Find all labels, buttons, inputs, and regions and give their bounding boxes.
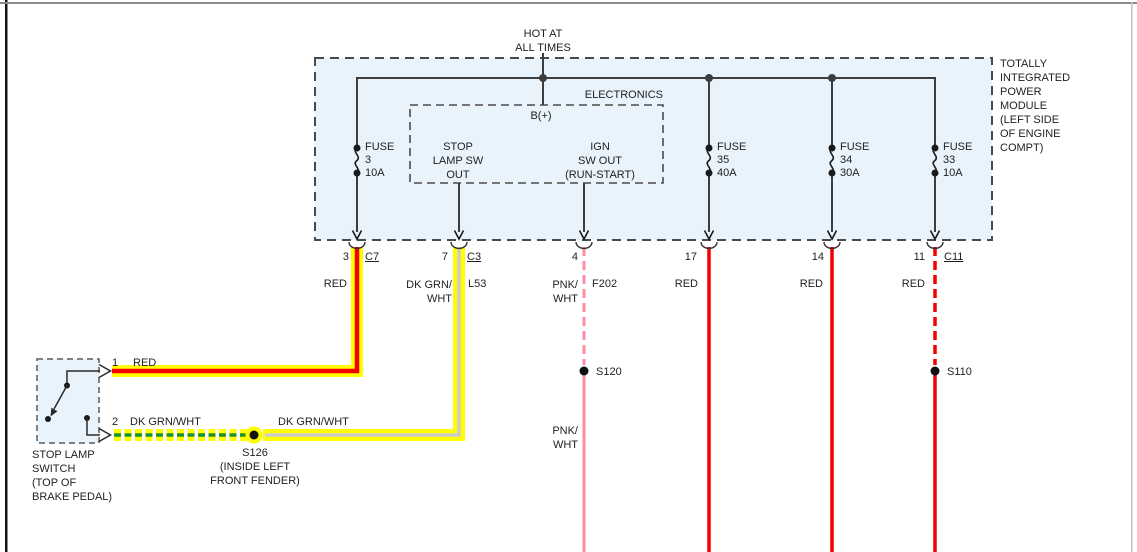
- pin1-chevron-icon: [99, 365, 111, 378]
- frame-top-edge: [0, 2, 1137, 4]
- out-line: LAMP SW: [417, 154, 499, 168]
- splice-name: S126: [188, 446, 322, 460]
- tipm-name-line: (LEFT SIDE: [1000, 113, 1070, 127]
- switch-pin1-number: 1: [112, 357, 118, 370]
- wire5-color-label: RED: [783, 278, 823, 291]
- pin-number-4: 4: [548, 251, 578, 264]
- wire-color-line: PNK/: [541, 278, 578, 292]
- stop-lamp-switch-label: STOP LAMP SWITCH (TOP OF BRAKE PEDAL): [32, 448, 112, 504]
- wire-color-line: WHT: [392, 292, 452, 306]
- splice-s120-dot: [580, 367, 589, 376]
- splice-s110-dot: [931, 367, 940, 376]
- switch-pin2-wire-color: DK GRN/WHT: [130, 416, 201, 429]
- stop-lamp-sw-out-label: STOP LAMP SW OUT: [417, 140, 499, 182]
- switch-label-line: SWITCH: [32, 462, 112, 476]
- splice-s110-label: S110: [947, 366, 972, 379]
- wire-red-c7-traced: [112, 247, 357, 371]
- switch-label-line: STOP LAMP: [32, 448, 112, 462]
- frame-right-edge: [1131, 2, 1133, 552]
- switch-label-line: BRAKE PEDAL): [32, 490, 112, 504]
- tipm-name-line: TOTALLY: [1000, 57, 1070, 71]
- connector-c3-link[interactable]: C3: [467, 251, 481, 264]
- fuse-amps: 10A: [943, 167, 972, 180]
- wire6-color-label: RED: [885, 278, 925, 291]
- wire-dkgrnwht-c3-traced: [112, 247, 459, 444]
- out-line: STOP: [417, 140, 499, 154]
- out-line: OUT: [417, 168, 499, 182]
- frame-left-edge: [5, 0, 8, 552]
- fuse-number: 34: [840, 154, 869, 167]
- fuse-34-label: FUSE 34 30A: [840, 141, 869, 180]
- wire-color-line: WHT: [541, 438, 578, 452]
- fuse-amps: 40A: [717, 167, 746, 180]
- fuse-word: FUSE: [365, 141, 394, 154]
- switch-label-line: (TOP OF: [32, 476, 112, 490]
- hot-at-all-times-label: HOT AT ALL TIMES: [493, 27, 593, 55]
- tipm-name-line: POWER: [1000, 85, 1070, 99]
- splice-location-line: (INSIDE LEFT: [188, 460, 322, 474]
- fuse-3-label: FUSE 3 10A: [365, 141, 394, 180]
- tipm-name-line: COMPT): [1000, 141, 1070, 155]
- wire2-color-label-right: DK GRN/WHT: [278, 416, 349, 429]
- wire2-circuit-label: L53: [468, 278, 486, 291]
- wire-highlight: [112, 247, 357, 371]
- wire2-color-label: DK GRN/ WHT: [392, 278, 452, 306]
- fuse-amps: 10A: [365, 167, 394, 180]
- wire3-color-label-2: PNK/ WHT: [541, 424, 578, 452]
- connector-c7-link[interactable]: C7: [365, 251, 379, 264]
- pin-number-11: 11: [895, 251, 925, 264]
- wire-color-line: WHT: [541, 292, 578, 306]
- out-line: IGN: [549, 140, 651, 154]
- pin-number-7: 7: [418, 251, 448, 264]
- fuse-word: FUSE: [840, 141, 869, 154]
- wire3-circuit-label: F202: [592, 278, 617, 291]
- tipm-name-label: TOTALLY INTEGRATED POWER MODULE (LEFT SI…: [1000, 57, 1070, 155]
- wire4-color-label: RED: [658, 278, 698, 291]
- pin-number-3: 3: [319, 251, 349, 264]
- wire-red-c11: [931, 247, 940, 552]
- wire3-color-label: PNK/ WHT: [541, 278, 578, 306]
- junction-dot: [539, 74, 547, 82]
- pin-number-14: 14: [794, 251, 824, 264]
- switch-pin1-wire-color: RED: [133, 357, 156, 370]
- connector-c11-link[interactable]: C11: [944, 251, 963, 264]
- wiring-diagram-page: HOT AT ALL TIMES TOTALLY INTEGRATED POWE…: [0, 0, 1137, 552]
- tipm-name-line: OF ENGINE: [1000, 127, 1070, 141]
- wire1-color-label: RED: [307, 278, 347, 291]
- out-line: SW OUT: [549, 154, 651, 168]
- pin2-chevron-icon: [99, 429, 111, 442]
- switch-pin2-number: 2: [112, 416, 118, 429]
- connector-bumps: [349, 242, 943, 249]
- fuse-33-label: FUSE 33 10A: [943, 141, 972, 180]
- switch-contact-dot: [45, 416, 51, 422]
- junction-dot: [705, 74, 713, 82]
- fuse-number: 35: [717, 154, 746, 167]
- wire-core-red: [112, 247, 357, 371]
- splice-s126-label: S126 (INSIDE LEFT FRONT FENDER): [188, 446, 322, 488]
- splice-location-line: FRONT FENDER): [188, 474, 322, 488]
- splice-s120-label: S120: [596, 366, 622, 379]
- fuse-35-label: FUSE 35 40A: [717, 141, 746, 180]
- electronics-label: ELECTRONICS: [553, 89, 663, 102]
- fuse-word: FUSE: [717, 141, 746, 154]
- wire-color-line: PNK/: [541, 424, 578, 438]
- b-plus-label: B(+): [519, 110, 563, 123]
- fuse-word: FUSE: [943, 141, 972, 154]
- fuse-amps: 30A: [840, 167, 869, 180]
- fuse-number: 3: [365, 154, 394, 167]
- hot-at-line2: ALL TIMES: [493, 41, 593, 55]
- wiring-diagram-canvas: [0, 0, 1137, 552]
- junction-dot: [828, 74, 836, 82]
- pin-number-17: 17: [667, 251, 697, 264]
- fuse-number: 33: [943, 154, 972, 167]
- ign-sw-out-label: IGN SW OUT (RUN-START): [549, 140, 651, 182]
- out-line: (RUN-START): [549, 168, 651, 182]
- tipm-name-line: MODULE: [1000, 99, 1070, 113]
- wire-pnkwht-f202: [580, 247, 589, 552]
- wire-color-line: DK GRN/: [392, 278, 452, 292]
- hot-at-line1: HOT AT: [493, 27, 593, 41]
- splice-s126-dot: [250, 431, 259, 440]
- tipm-name-line: INTEGRATED: [1000, 71, 1070, 85]
